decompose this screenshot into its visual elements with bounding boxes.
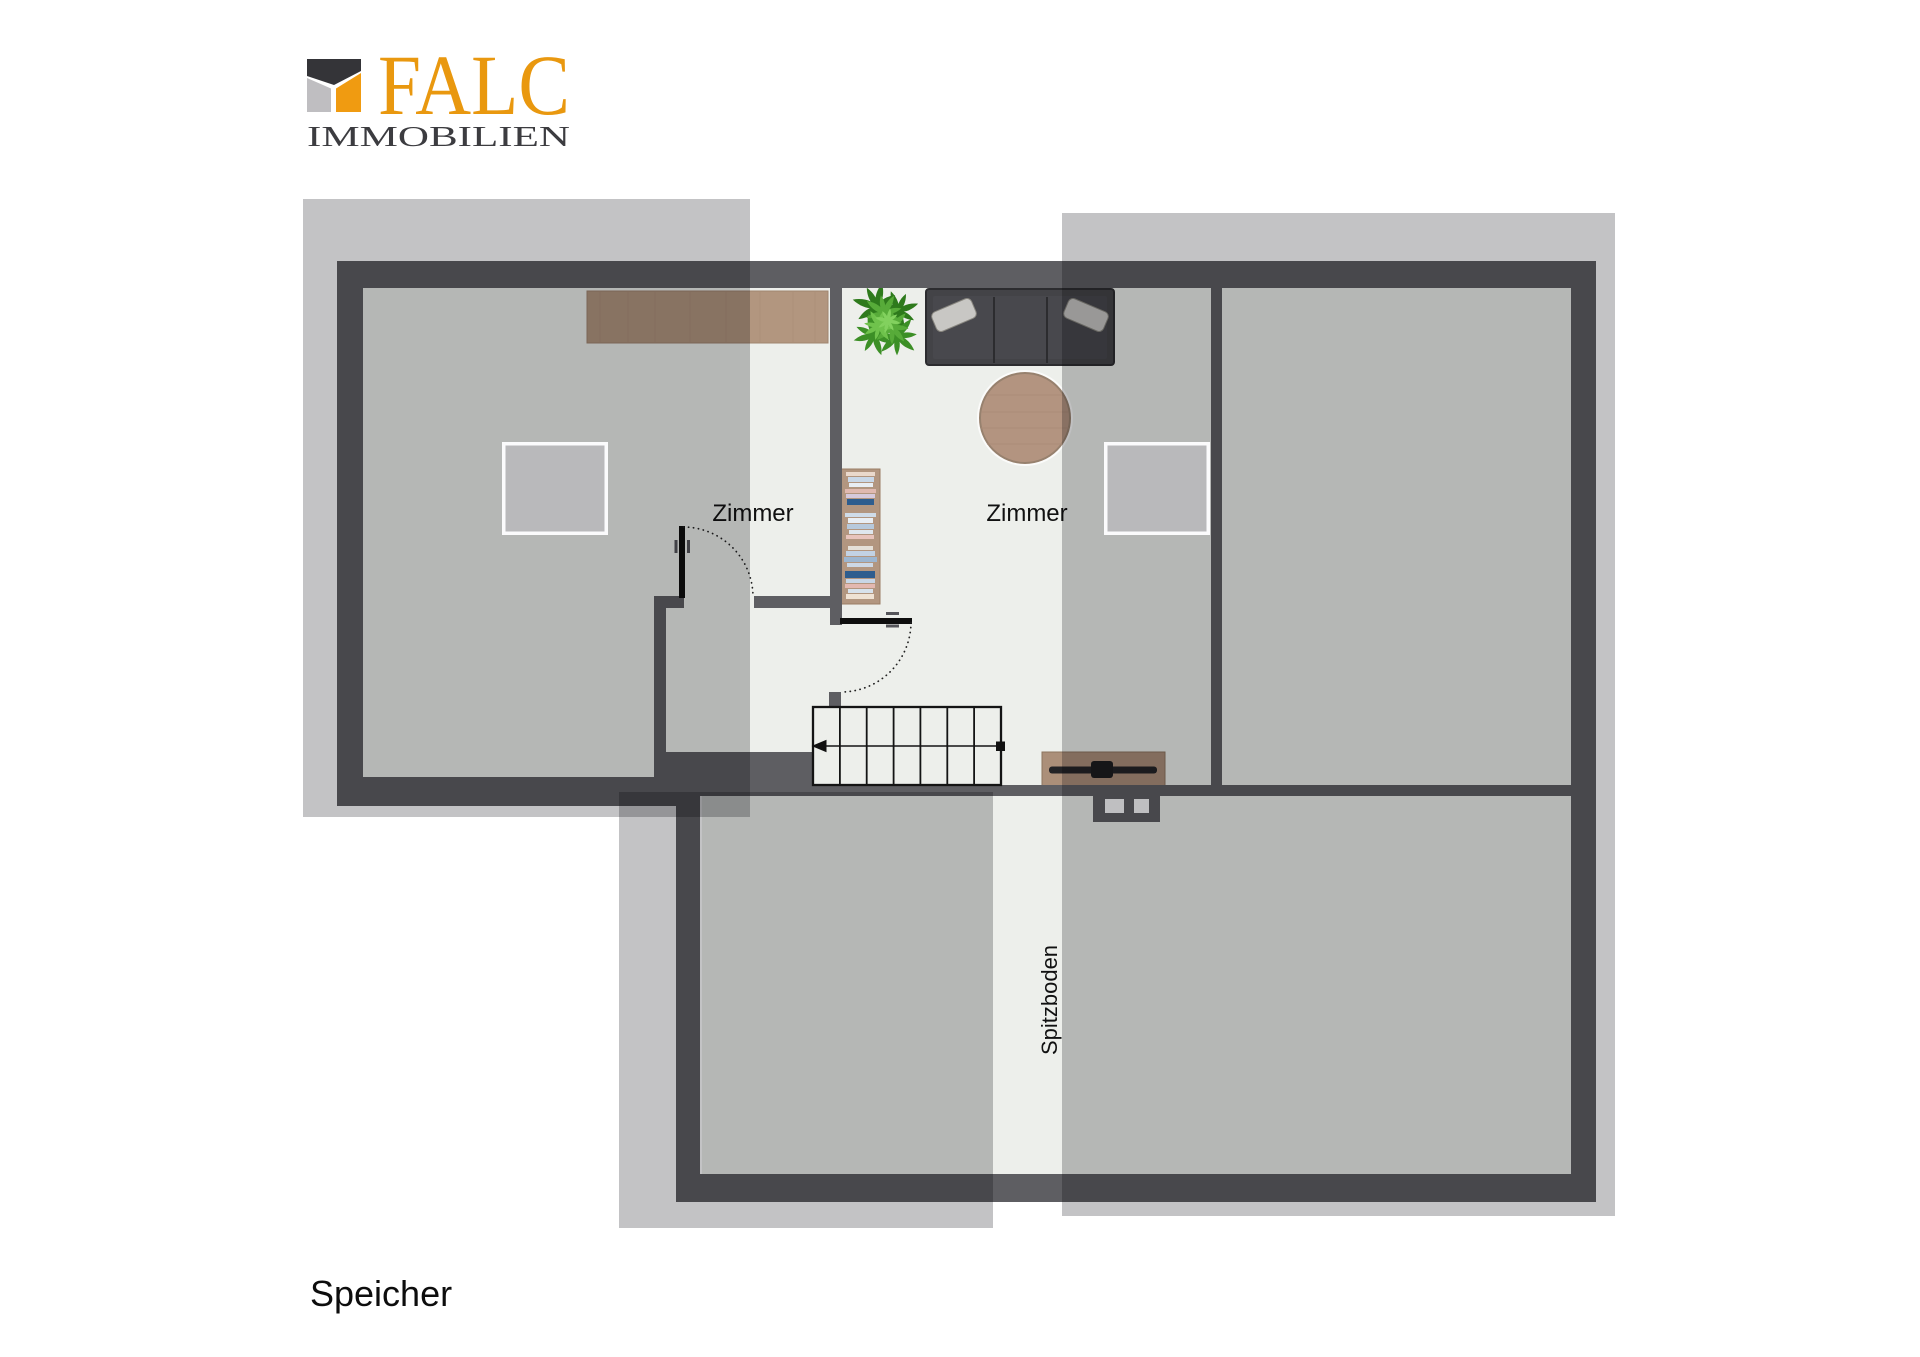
svg-text:Spitzboden: Spitzboden [1037, 945, 1062, 1055]
svg-text:FALC: FALC [378, 37, 570, 133]
svg-text:Speicher: Speicher [310, 1273, 452, 1314]
svg-text:Zimmer: Zimmer [986, 500, 1067, 527]
svg-text:IMMOBILIEN: IMMOBILIEN [307, 122, 570, 153]
